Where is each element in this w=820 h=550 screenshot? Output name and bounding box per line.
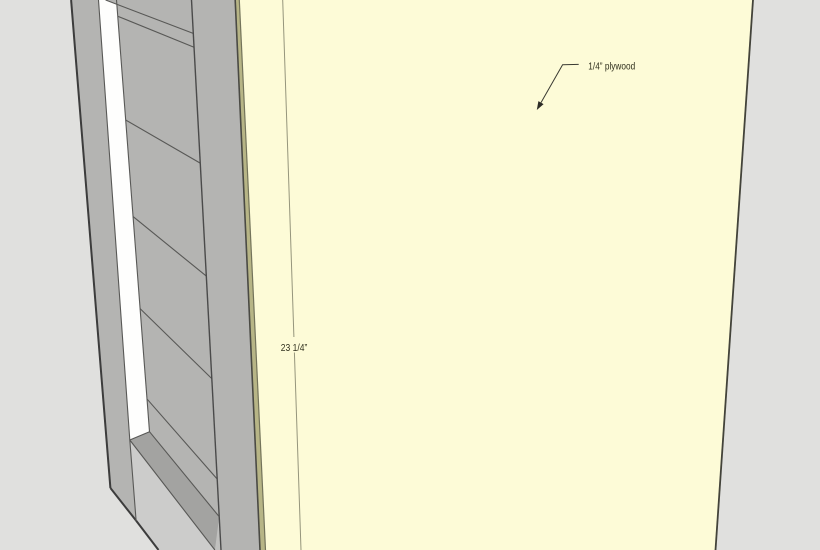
svg-text:1/4” plywood: 1/4” plywood <box>588 61 635 73</box>
svg-text:23 1/4”: 23 1/4” <box>281 342 308 354</box>
